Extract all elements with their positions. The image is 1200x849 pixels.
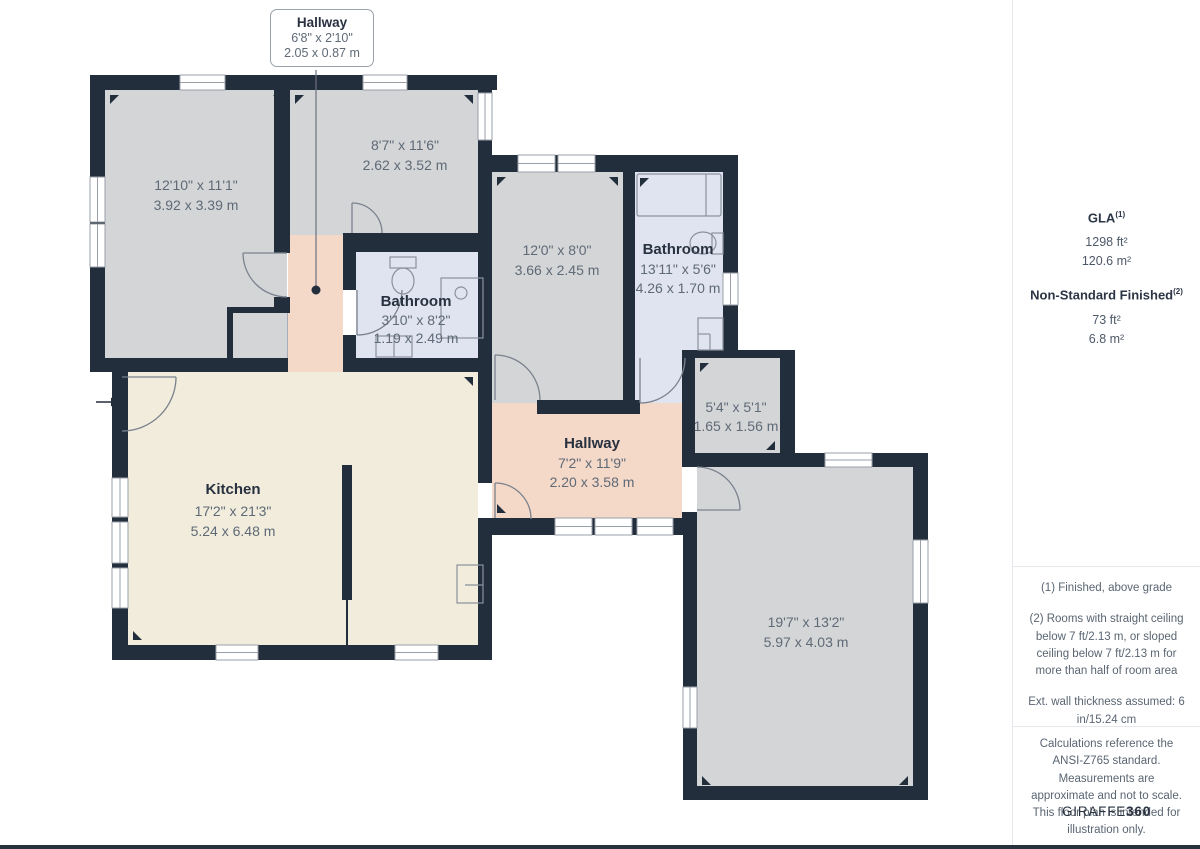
label-bathroom-small-name: Bathroom (381, 293, 452, 310)
gla-label: GLA(1) (1013, 210, 1200, 225)
nsf-value-ft: 73 ft² (1013, 311, 1200, 330)
callout-anchor-dot (312, 286, 321, 295)
label-room-top-middle-imperial: 8'7" x 11'6" (371, 137, 439, 153)
callout-metric: 2.05 x 0.87 m (275, 46, 369, 60)
kitchen-area (128, 372, 478, 645)
footnote-wall-thickness: Ext. wall thickness assumed: 6 in/15.24 … (1027, 694, 1186, 729)
bottom-edge-bar (0, 845, 1200, 849)
floorplan-page: 12'10" x 11'1" 3.92 x 3.39 m 8'7" x 11'6… (0, 0, 1200, 849)
label-hallway-metric: 2.20 x 3.58 m (550, 474, 635, 490)
label-hallway-name: Hallway (564, 435, 621, 452)
label-kitchen-name: Kitchen (205, 481, 260, 498)
sidebar: GLA(1) 1298 ft² 120.6 m² Non-Standard Fi… (1012, 0, 1200, 845)
footnote-1: (1) Finished, above grade (1027, 580, 1186, 597)
callout-imperial: 6'8" x 2'10" (275, 31, 369, 45)
label-kitchen-imperial: 17'2" x 21'3" (195, 503, 272, 519)
nsf-label: Non-Standard Finished(2) (1013, 287, 1200, 302)
label-storage-imperial: 5'4" x 5'1" (705, 399, 766, 415)
label-hallway-imperial: 7'2" x 11'9" (558, 455, 626, 471)
label-room-top-left-metric: 3.92 x 3.39 m (154, 197, 239, 213)
floor-plan: 12'10" x 11'1" 3.92 x 3.39 m 8'7" x 11'6… (0, 0, 1012, 849)
logo-text: GIRAFFE (1062, 804, 1126, 819)
label-bathroom-large-metric: 4.26 x 1.70 m (636, 280, 721, 296)
label-room-top-middle-metric: 2.62 x 3.52 m (363, 157, 448, 173)
label-storage-metric: 1.65 x 1.56 m (694, 418, 779, 434)
label-bathroom-small-metric: 1.19 x 2.49 m (374, 330, 459, 346)
hallway-callout: Hallway 6'8" x 2'10" 2.05 x 0.87 m (270, 9, 374, 67)
closet-area (233, 313, 288, 358)
gla-value-m: 120.6 m² (1013, 252, 1200, 271)
sidebar-divider-2 (1013, 726, 1200, 727)
label-room-middle-metric: 3.66 x 2.45 m (515, 262, 600, 278)
label-kitchen-metric: 5.24 x 6.48 m (191, 523, 276, 539)
label-bathroom-large-imperial: 13'11" x 5'6" (640, 261, 716, 277)
disclaimer-block: Calculations reference the ANSI-Z765 sta… (1013, 736, 1200, 840)
label-room-bottom-right-metric: 5.97 x 4.03 m (764, 634, 849, 650)
label-room-middle-imperial: 12'0" x 8'0" (523, 242, 592, 258)
label-bathroom-small-imperial: 3'10" x 8'2" (382, 312, 451, 328)
room-middle-area (492, 172, 623, 403)
area-summary: GLA(1) 1298 ft² 120.6 m² Non-Standard Fi… (1013, 210, 1200, 349)
label-room-bottom-right-imperial: 19'7" x 13'2" (768, 614, 845, 630)
callout-room-name: Hallway (275, 15, 369, 30)
gla-value-ft: 1298 ft² (1013, 233, 1200, 252)
disclaimer-text: Calculations reference the ANSI-Z765 sta… (1031, 736, 1182, 840)
footnote-2: (2) Rooms with straight ceiling below 7 … (1027, 611, 1186, 680)
label-bathroom-large-name: Bathroom (643, 241, 714, 258)
footnotes: (1) Finished, above grade (2) Rooms with… (1013, 580, 1200, 743)
sidebar-divider-1 (1013, 566, 1200, 567)
brand-logo: GIRAFFE360 (1013, 803, 1200, 821)
label-room-top-left-imperial: 12'10" x 11'1" (154, 177, 238, 193)
nsf-value-m: 6.8 m² (1013, 330, 1200, 349)
logo-bold: 360 (1126, 804, 1151, 819)
